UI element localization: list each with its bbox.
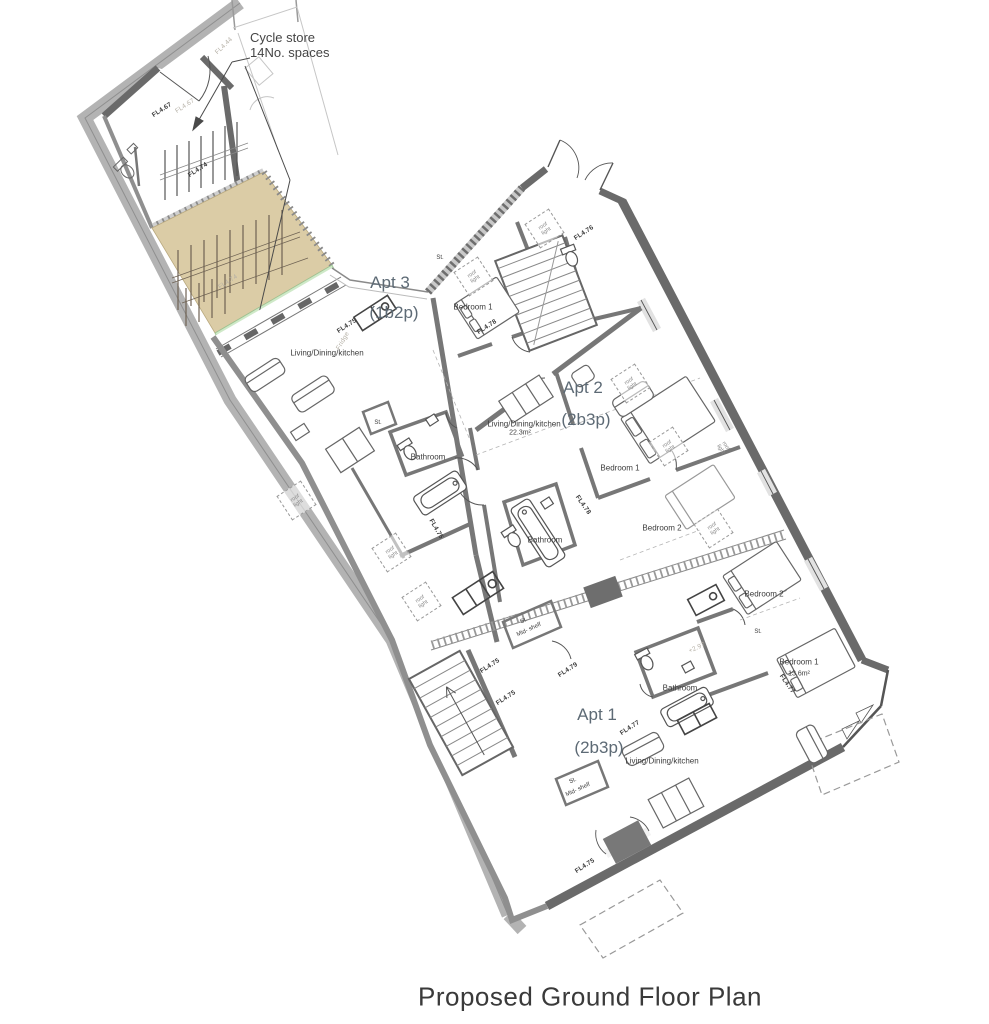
small-label: Mid- shelf	[565, 782, 591, 798]
roof-light-marker: rooflight	[704, 428, 741, 465]
level-label: FL4.67	[151, 101, 173, 119]
roof-light-marker: rooflight	[453, 256, 493, 296]
roof-light-marker: rooflight	[693, 508, 733, 548]
small-label: St.	[519, 617, 528, 626]
level-label: FL4.75	[574, 857, 596, 875]
room-label: Bathroom	[411, 453, 446, 462]
room-label: Bedroom 1	[600, 464, 639, 473]
level-label: FL4.74	[217, 273, 239, 291]
level-label: FL4.74	[187, 161, 209, 179]
room-label: Bedroom 1	[779, 658, 818, 667]
room-label: Bathroom	[663, 684, 698, 693]
label-overlay: Cycle store 14No. spaces Proposed Ground…	[0, 0, 989, 1024]
room-label: Bedroom 2	[642, 524, 681, 533]
cycle-store-note-line1: Cycle store	[250, 30, 315, 45]
apartment-name-label: Apt 3	[370, 273, 410, 293]
apartment-name-label: Apt 2	[563, 378, 603, 398]
cycle-store-note-line2: 14No. spaces	[250, 45, 330, 60]
level-label: FL4.75	[428, 518, 445, 540]
apartment-occupancy-label: (1b2p)	[369, 303, 418, 323]
room-label: 22.3m²	[509, 430, 531, 437]
drawing-title: Proposed Ground Floor Plan	[418, 982, 762, 1013]
level-label: FL4.44	[214, 36, 234, 56]
level-label: FL4.78	[574, 494, 592, 516]
small-label: St.	[374, 420, 381, 426]
level-label: FL4.79	[557, 661, 579, 679]
roof-light-marker: rooflight	[610, 363, 650, 403]
roof-light-marker: rooflight	[371, 532, 411, 572]
room-label: Bathroom	[528, 536, 563, 545]
roof-light-marker: rooflight	[401, 581, 441, 621]
floor-plan-page: Cycle store 14No. spaces Proposed Ground…	[0, 0, 989, 1024]
level-label: FL4.78	[476, 318, 498, 336]
apartment-occupancy-label: (2b3p)	[561, 410, 610, 430]
room-label: Living/Dining/kitchen	[290, 349, 363, 358]
small-label: St.	[436, 255, 443, 261]
small-label: St.	[568, 777, 577, 786]
roof-light-marker: rooflight	[648, 426, 688, 466]
room-label: Living/Dining/kitchen	[625, 757, 698, 766]
small-label: Mid- shelf	[516, 622, 542, 638]
apartment-name-label: Apt 1	[577, 705, 617, 725]
level-label: FL4.67	[174, 97, 196, 115]
room-label: Bedroom 2	[744, 590, 783, 599]
room-label: Bedroom 1	[453, 303, 492, 312]
room-label: Living/Dining/kitchen	[487, 420, 560, 429]
level-label: FL4.75	[479, 657, 501, 675]
level-label: +2.97	[688, 641, 707, 655]
level-label: FL4.77	[619, 719, 641, 737]
roof-light-marker: rooflight	[524, 208, 564, 248]
level-label: FL4.75	[495, 689, 517, 707]
small-label: St.	[754, 629, 761, 635]
room-label: 13.6m²	[788, 671, 810, 678]
apartment-occupancy-label: (2b3p)	[574, 738, 623, 758]
roof-light-marker: rooflight	[276, 480, 316, 520]
level-label: FL4.76	[573, 224, 595, 242]
